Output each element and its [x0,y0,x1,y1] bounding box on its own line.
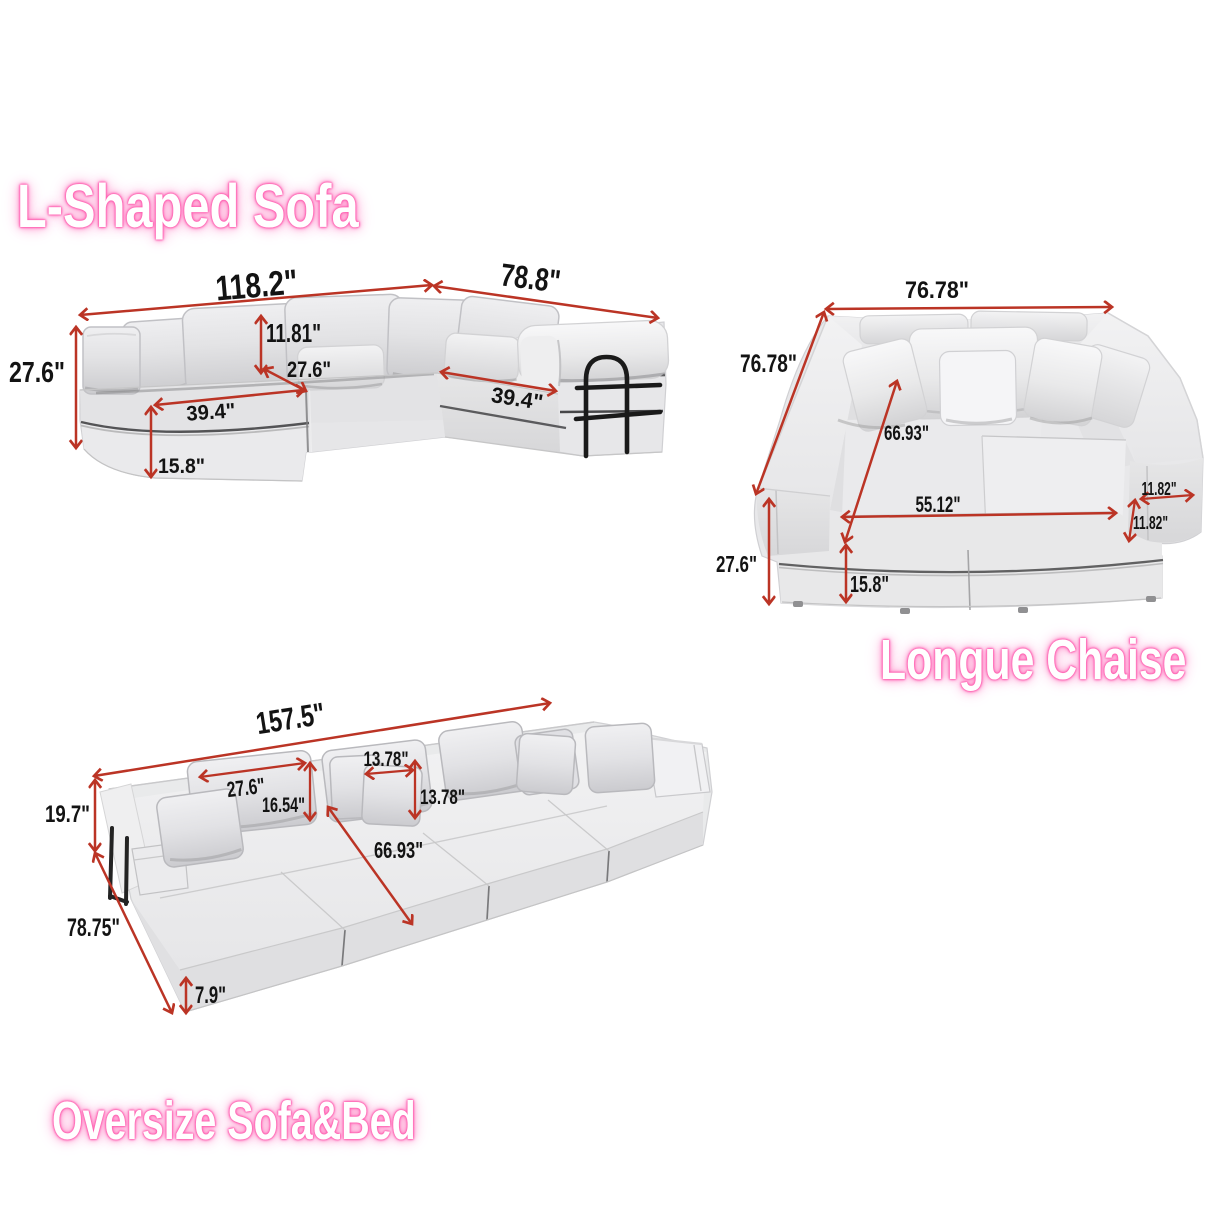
svg-text:27.6": 27.6" [225,773,266,802]
svg-text:11.82": 11.82" [1142,479,1177,499]
svg-text:13.78": 13.78" [364,748,409,771]
svg-text:11.81": 11.81" [266,318,321,348]
svg-text:27.6": 27.6" [287,357,331,382]
svg-text:66.93": 66.93" [374,837,423,863]
svg-text:27.6": 27.6" [9,357,65,389]
svg-text:66.93": 66.93" [884,422,929,445]
svg-text:19.7": 19.7" [45,801,90,828]
svg-text:27.6": 27.6" [716,551,757,577]
svg-text:15.8": 15.8" [158,455,205,478]
svg-text:55.12": 55.12" [916,492,961,517]
svg-text:76.78": 76.78" [740,350,797,378]
svg-text:15.8": 15.8" [850,571,889,597]
svg-text:78.8": 78.8" [499,257,563,300]
svg-text:78.75": 78.75" [67,914,120,942]
svg-text:157.5": 157.5" [254,696,328,741]
svg-text:7.9": 7.9" [195,982,226,1009]
svg-text:39.4": 39.4" [186,399,236,425]
svg-text:118.2": 118.2" [214,263,299,309]
svg-text:13.78": 13.78" [420,786,465,809]
svg-text:11.82": 11.82" [1133,513,1168,533]
svg-text:76.78": 76.78" [905,277,969,304]
svg-text:16.54": 16.54" [262,794,305,817]
